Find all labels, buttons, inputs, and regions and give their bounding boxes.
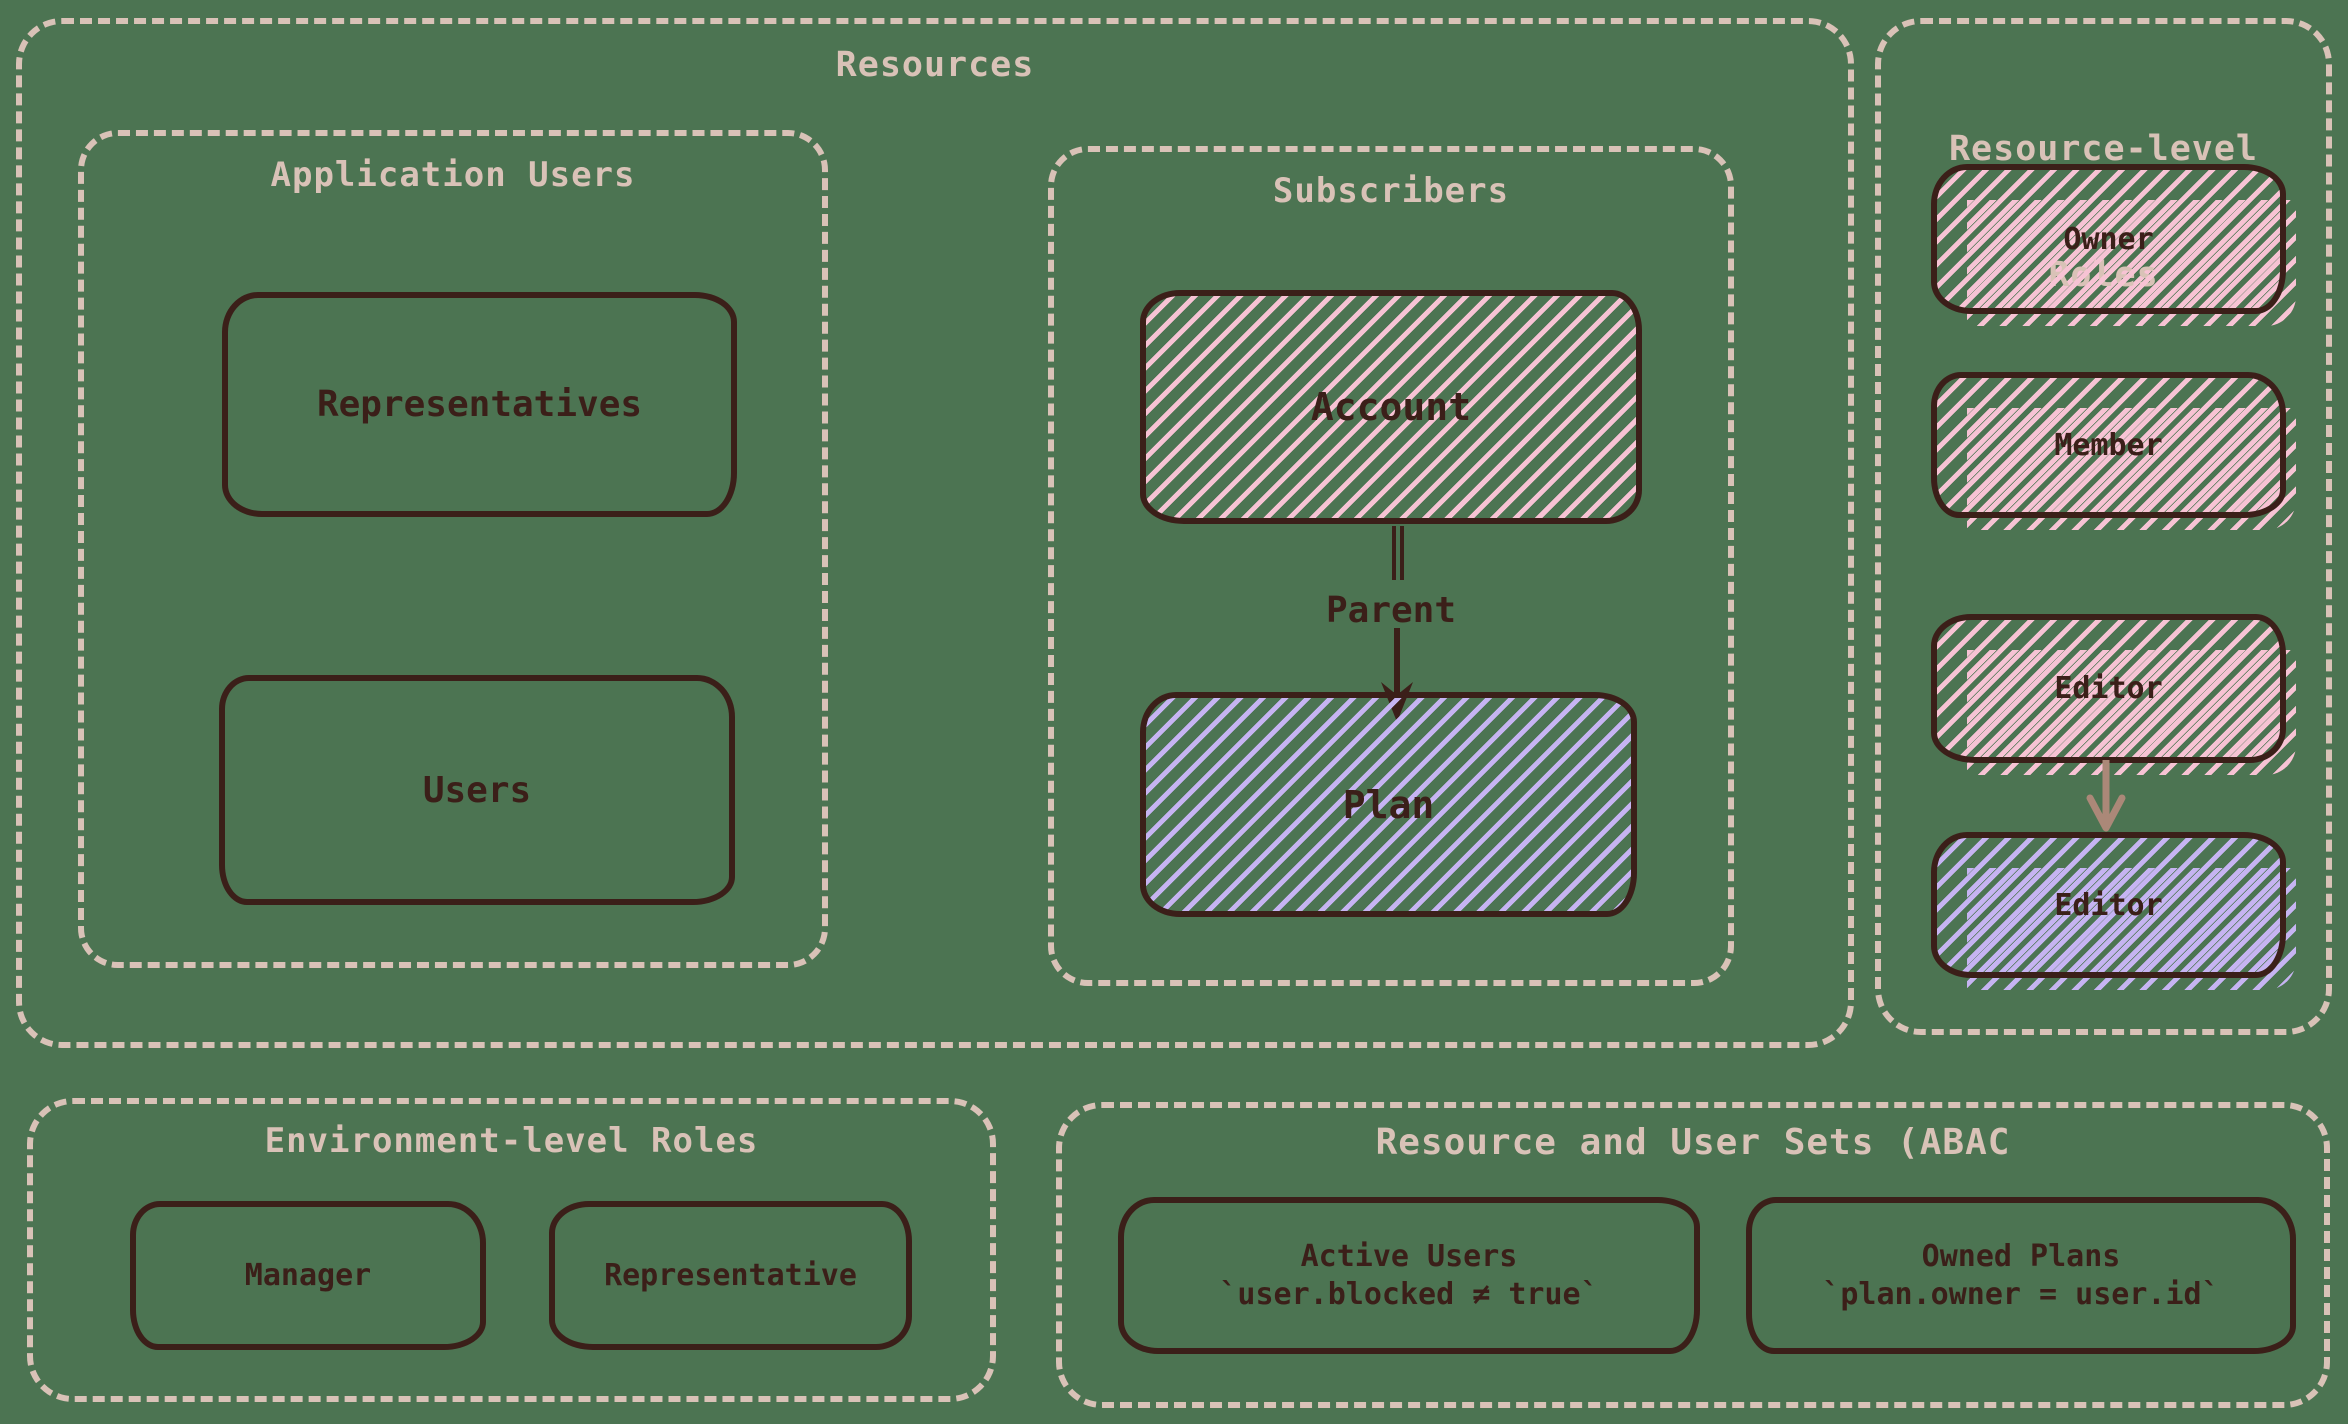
resource-user-sets-title: Resource and User Sets (ABAC [1062,1122,2324,1164]
account-label: Account [1311,385,1471,429]
environment-level-roles-group: Environment-level Roles Manager Represen… [27,1098,996,1402]
representative-role-node: Representative [549,1201,912,1350]
owned-plans-set-rule: `plan.owner = user.id` [1822,1276,2219,1314]
application-users-title: Application Users [84,154,822,196]
owned-plans-set-name: Owned Plans [1922,1238,2121,1276]
subscribers-group: Subscribers Account Parent Plan [1048,146,1734,986]
parent-edge-line [1392,526,1404,580]
parent-edge-label: Parent [1140,590,1642,631]
owner-role-label: Owner [2063,222,2153,257]
application-users-group: Application Users Representatives Users [78,130,828,968]
resources-title: Resources [22,44,1848,86]
representative-role-label: Representative [604,1258,857,1293]
authorization-diagram: Resources Application Users Representati… [0,0,2348,1424]
owned-plans-set-node: Owned Plans `plan.owner = user.id` [1746,1197,2296,1354]
manager-role-label: Manager [245,1258,371,1293]
representatives-label: Representatives [317,384,642,425]
active-users-set-name: Active Users [1301,1238,1518,1276]
environment-level-roles-title: Environment-level Roles [33,1120,990,1162]
active-users-set-rule: `user.blocked ≠ true` [1219,1276,1598,1314]
editor-role-lavender-label: Editor [2054,888,2162,923]
users-node: Users [219,675,735,905]
active-users-set-node: Active Users `user.blocked ≠ true` [1118,1197,1700,1354]
editor-inherit-arrow-icon [2084,760,2128,834]
resource-user-sets-group: Resource and User Sets (ABAC Active User… [1056,1102,2330,1408]
member-role-node: Member [1931,372,2286,518]
resources-group: Resources Application Users Representati… [16,18,1854,1048]
editor-role-pink-node: Editor [1931,614,2286,763]
editor-role-lavender-node: Editor [1931,832,2286,978]
member-role-label: Member [2054,428,2162,463]
plan-node: Plan [1140,692,1637,917]
account-node: Account [1140,290,1642,524]
manager-role-node: Manager [130,1201,486,1350]
users-label: Users [423,770,531,811]
resource-level-roles-group: Resource-level Roles Owner Member Editor… [1875,18,2332,1035]
owner-role-node: Owner [1931,164,2286,314]
plan-label: Plan [1343,783,1435,827]
subscribers-title: Subscribers [1054,170,1728,212]
editor-role-pink-label: Editor [2054,671,2162,706]
representatives-node: Representatives [222,292,737,517]
